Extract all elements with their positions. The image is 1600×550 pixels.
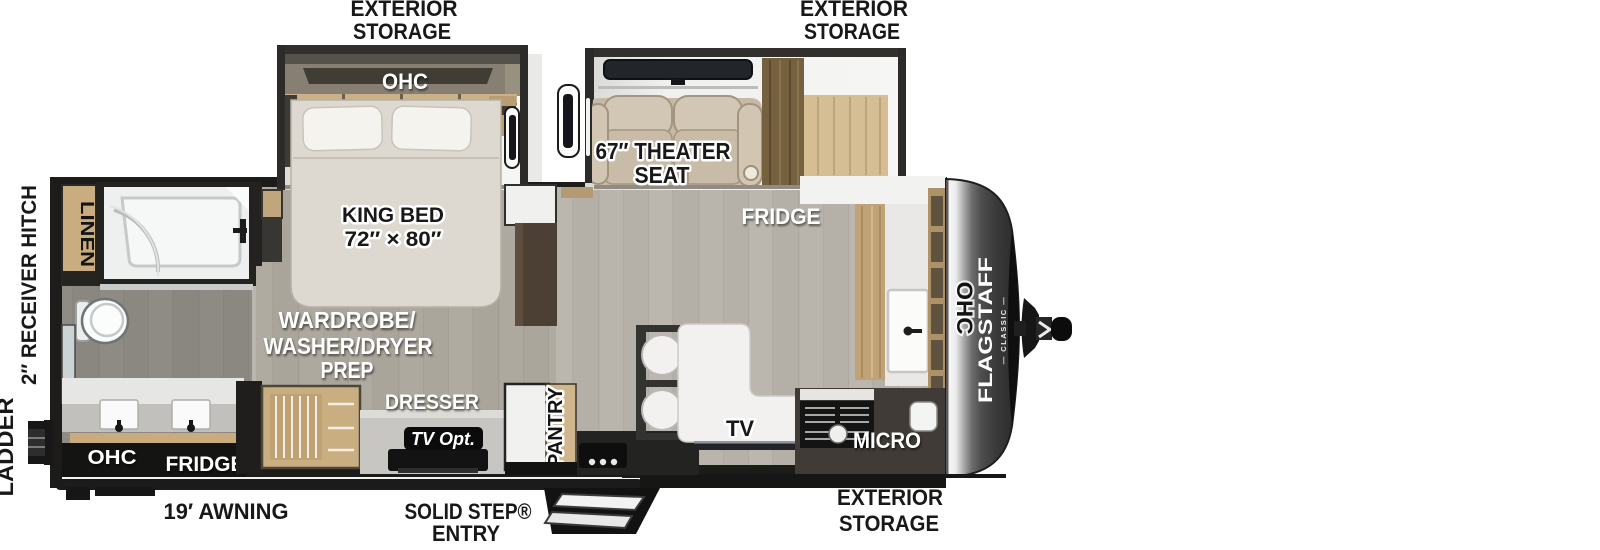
- svg-text:OHC: OHC: [88, 447, 137, 469]
- svg-text:OHC: OHC: [382, 69, 428, 94]
- svg-text:— CLASSIC —: — CLASSIC —: [999, 296, 1008, 365]
- svg-text:SEAT: SEAT: [635, 162, 690, 188]
- svg-text:STORAGE: STORAGE: [353, 19, 451, 44]
- svg-text:EXTERIOR: EXTERIOR: [351, 0, 458, 21]
- svg-text:72″ × 80″: 72″ × 80″: [345, 227, 442, 251]
- svg-text:EXTERIOR: EXTERIOR: [800, 0, 908, 21]
- svg-text:PANTRY: PANTRY: [545, 386, 567, 467]
- svg-text:FLAGSTAFF: FLAGSTAFF: [976, 257, 997, 403]
- svg-text:2″ RECEIVER HITCH: 2″ RECEIVER HITCH: [18, 185, 41, 385]
- svg-text:EXTERIOR: EXTERIOR: [837, 485, 943, 510]
- svg-text:ENTRY: ENTRY: [432, 521, 500, 546]
- svg-text:19′ AWNING: 19′ AWNING: [164, 499, 289, 524]
- svg-text:67″ THEATER: 67″ THEATER: [596, 138, 731, 164]
- svg-text:PREP: PREP: [321, 357, 374, 383]
- svg-text:STORAGE: STORAGE: [804, 19, 900, 44]
- svg-text:DRESSER: DRESSER: [385, 391, 479, 414]
- svg-text:KING BED: KING BED: [342, 203, 444, 227]
- svg-text:FRIDGE: FRIDGE: [166, 453, 245, 476]
- svg-text:WASHER/DRYER: WASHER/DRYER: [264, 333, 433, 359]
- svg-text:WARDROBE/: WARDROBE/: [279, 307, 417, 333]
- svg-text:TV: TV: [726, 416, 754, 441]
- svg-text:MICRO: MICRO: [853, 428, 921, 453]
- svg-text:OHC: OHC: [952, 282, 977, 335]
- svg-text:LADDER: LADDER: [0, 397, 18, 496]
- svg-text:FRIDGE: FRIDGE: [742, 204, 821, 229]
- svg-text:LINEN: LINEN: [77, 201, 97, 267]
- svg-text:TV Opt.: TV Opt.: [411, 429, 475, 449]
- svg-text:STORAGE: STORAGE: [839, 511, 939, 536]
